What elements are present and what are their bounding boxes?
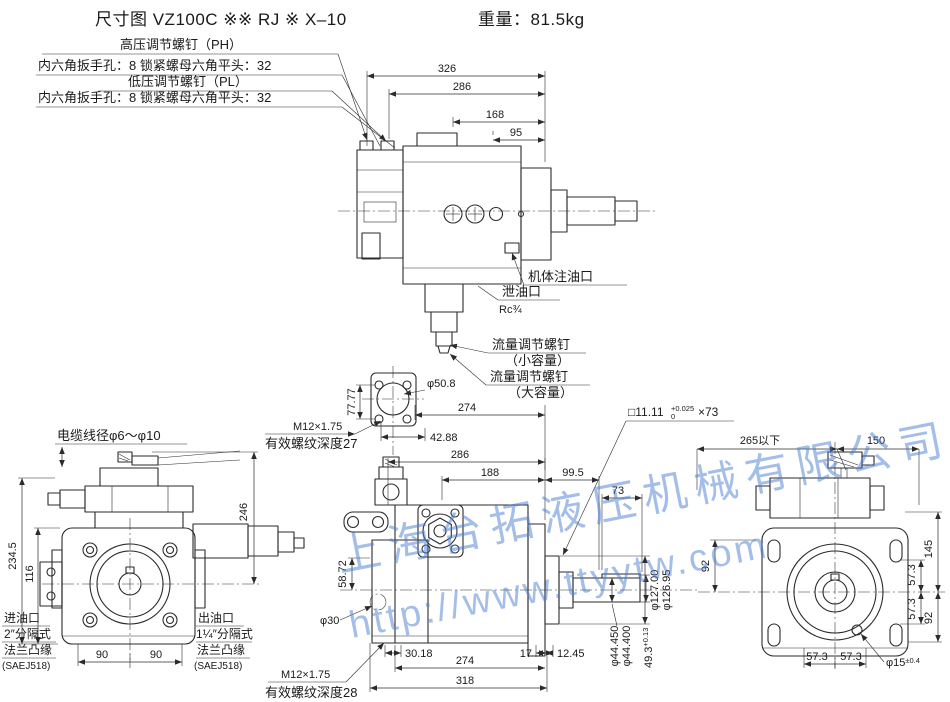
cable-diameter-label: 电缆线径φ6～φ10 [57, 428, 161, 443]
dim-573d-label: 57.3 [840, 651, 861, 663]
inlet-standard-label: (SAEJ518) [2, 661, 50, 672]
key-tol-lower-label: 0 [671, 412, 675, 421]
dim-4288-label: 42.88 [430, 432, 458, 444]
dim-573-right-upper: 57.3 [900, 560, 925, 592]
flow-screw-small-line2: （小容量） [505, 353, 570, 368]
weight-label: 重量：81.5kg [478, 10, 585, 29]
dim-493-label: 49.3+0.13 [641, 628, 655, 668]
dim-145-label: 145 [923, 540, 935, 558]
dimension-drawing-canvas: 尺寸图 VZ100C ※※ RJ ※ X–10 重量：81.5kg [0, 0, 950, 702]
dim-274-lower-label: 274 [456, 655, 474, 667]
callout-inlet-port: 进油口 2″分隔式 法兰凸缘 (SAEJ518) [2, 611, 56, 672]
dim-274-upper-label: 274 [458, 402, 476, 414]
dim-168: 168 [453, 109, 545, 127]
flow-screw-large-line1: 流量调节螺钉 [490, 369, 568, 384]
dim-shaft-min-label: φ44.400 [621, 626, 633, 667]
flow-screw-large-line2: （大容量） [508, 385, 573, 400]
thread-m12-upper-label: M12×1.75 [293, 421, 342, 433]
outlet-flange-type-label: 1¼″分隔式 [196, 627, 253, 641]
callout-flow-screw-small: 流量调节螺钉 （小容量） [450, 337, 586, 368]
callout-pilot-508: φ50.8 [404, 378, 456, 394]
dim-326-label: 326 [438, 63, 456, 75]
inlet-flange-type-label: 2″分隔式 [4, 627, 51, 641]
key-size-label: □11.11 [628, 405, 664, 419]
thread-depth-27-label: 有效螺纹深度27 [265, 436, 357, 451]
dim-3018-label: 30.18 [405, 648, 433, 660]
dim-90b-label: 90 [150, 649, 162, 661]
outlet-port-label: 出油口 [198, 611, 234, 625]
dim-188-label: 188 [481, 467, 499, 479]
page-title: 尺寸图 VZ100C ※※ RJ ※ X–10 [95, 10, 347, 29]
thread-depth-28-label: 有效螺纹深度28 [265, 685, 357, 700]
key-length-label: ×73 [698, 405, 719, 419]
outlet-standard-label: (SAEJ518) [194, 661, 242, 672]
dim-17: 17 [520, 645, 546, 660]
callout-high-pressure-label: 高压调节螺钉（PH） [120, 37, 242, 52]
dim-7777-label: 77.77 [346, 388, 358, 416]
dim-116-label: 116 [24, 565, 36, 583]
dim-265-label: 265以下 [740, 435, 780, 447]
dim-95: 95 [493, 127, 545, 140]
callout-hex-wrench-2: 内六角扳手孔：8 锁紧螺母六角平头：32 [36, 90, 395, 148]
callout-thread-m12-upper: M12×1.75 有效螺纹深度27 [265, 421, 381, 451]
dim-2345-label: 234.5 [7, 542, 19, 570]
callout-thread-m12-lower: M12×1.75 有效螺纹深度28 [265, 643, 384, 700]
outlet-flange-label: 法兰凸缘 [197, 643, 245, 657]
dim-shaft-max-label: φ44.450 [609, 626, 621, 667]
pump-front-view-artwork [40, 451, 304, 660]
dim-573-right-lower-label: 57.3 [906, 598, 918, 619]
dim-318-label: 318 [456, 675, 474, 687]
watermark: 上海台拓液压机械有限公司 http://www.ttyytw.com [333, 415, 950, 647]
callout-hex-wrench-1-label: 内六角扳手孔：8 锁紧螺母六角平头：32 [38, 58, 271, 73]
callout-hex-wrench-2-label: 内六角扳手孔：8 锁紧螺母六角平头：32 [38, 90, 271, 105]
thread-m12-lower-label: M12×1.75 [281, 669, 330, 681]
callout-drain-label: 泄油口 [502, 284, 541, 299]
dim-1245: 12.45 [546, 645, 585, 660]
dim-phi30-label: φ30 [320, 615, 339, 627]
callout-case-fill-label: 机体注油口 [528, 269, 593, 284]
dim-573-right-upper-label: 57.3 [906, 564, 918, 585]
callout-case-fill-port: 机体注油口 [512, 253, 627, 285]
dimension-drawing-page: 尺寸图 VZ100C ※※ RJ ※ X–10 重量：81.5kg [0, 0, 950, 702]
dim-168-label: 168 [486, 109, 504, 121]
dim-286-top-label: 286 [453, 81, 471, 93]
dim-pilot-508-label: φ50.8 [427, 378, 456, 390]
callout-low-pressure-label: 低压调节螺钉（PL） [128, 74, 248, 89]
dim-92-right-label: 92 [923, 612, 935, 624]
callout-outlet-port: 出油口 1¼″分隔式 法兰凸缘 (SAEJ518) [194, 611, 253, 672]
dim-573c-label: 57.3 [806, 651, 827, 663]
dim-17-label: 17 [520, 648, 532, 660]
callout-drain-size-label: Rc¾ [499, 304, 522, 316]
dim-995-label: 99.5 [562, 467, 583, 479]
pump-side-view-artwork [338, 133, 658, 353]
flow-screw-small-line1: 流量调节螺钉 [492, 337, 570, 352]
dim-3018: 30.18 [385, 645, 433, 660]
dim-90a-label: 90 [96, 649, 108, 661]
dim-246-label: 246 [238, 503, 250, 521]
callout-cable-diameter: 电缆线径φ6～φ10 [55, 428, 187, 467]
dim-573-right-lower: 57.3 [900, 592, 925, 624]
dim-286-lower-label: 286 [451, 449, 469, 461]
dim-95-label: 95 [510, 127, 522, 139]
dim-phi15-label: φ15±0.4 [886, 656, 920, 669]
inlet-flange-label: 法兰凸缘 [4, 643, 52, 657]
callout-drain-port: 泄油口 Rc¾ [478, 284, 560, 316]
inlet-port-label: 进油口 [4, 611, 40, 625]
dim-1245-label: 12.45 [557, 648, 585, 660]
